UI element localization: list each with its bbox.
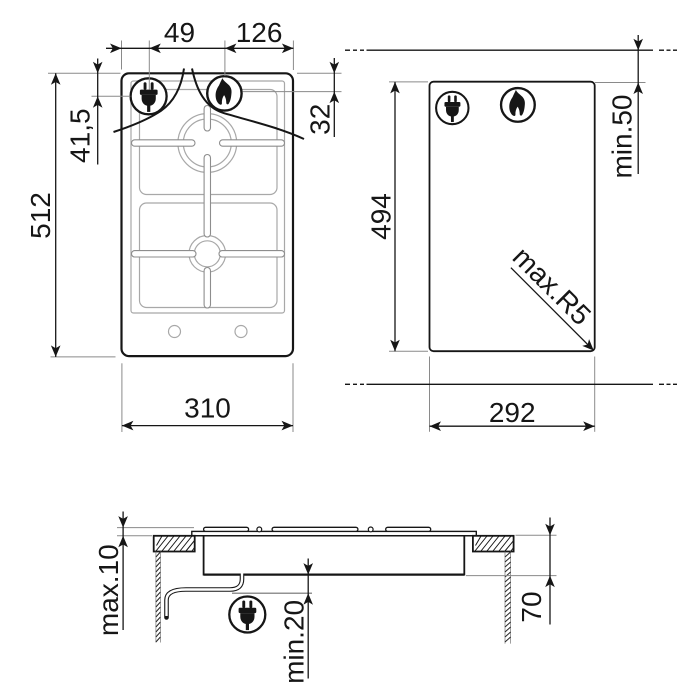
svg-text:310: 310 bbox=[184, 393, 231, 424]
svg-text:min.50: min.50 bbox=[606, 94, 637, 178]
svg-text:494: 494 bbox=[366, 193, 397, 240]
svg-text:max.10: max.10 bbox=[93, 544, 124, 636]
svg-text:min.20: min.20 bbox=[279, 600, 310, 684]
svg-text:292: 292 bbox=[489, 397, 536, 428]
svg-text:41,5: 41,5 bbox=[64, 108, 95, 163]
svg-text:70: 70 bbox=[516, 591, 547, 622]
svg-text:512: 512 bbox=[25, 192, 56, 239]
svg-text:126: 126 bbox=[236, 17, 283, 48]
svg-text:49: 49 bbox=[164, 17, 195, 48]
svg-text:32: 32 bbox=[305, 104, 336, 135]
